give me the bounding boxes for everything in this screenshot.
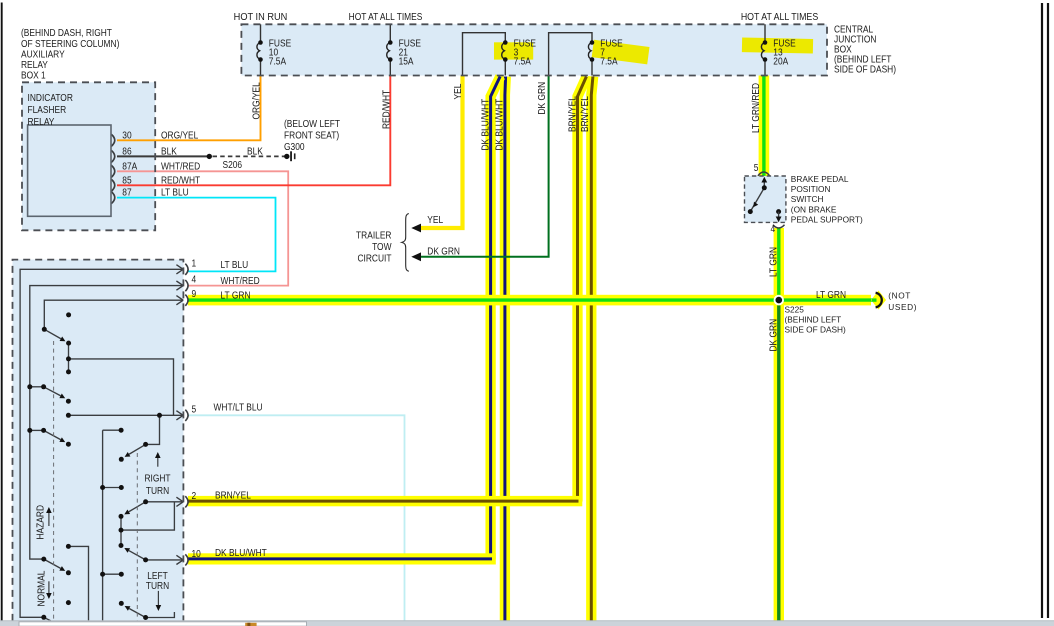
svg-text:SWITCH: SWITCH xyxy=(791,194,824,204)
svg-text:INDICATOR: INDICATOR xyxy=(28,92,74,104)
svg-text:20A: 20A xyxy=(773,56,789,68)
svg-text:(BEHIND LEFT: (BEHIND LEFT xyxy=(785,314,842,324)
svg-text:TURN: TURN xyxy=(146,580,169,592)
svg-text:HAZARD: HAZARD xyxy=(35,505,47,540)
svg-text:CIRCUIT: CIRCUIT xyxy=(357,253,391,265)
svg-text:LT GRN: LT GRN xyxy=(221,290,251,302)
svg-text:(ON BRAKE: (ON BRAKE xyxy=(791,204,837,214)
svg-text:WHT/RED: WHT/RED xyxy=(161,160,200,172)
svg-text:(BELOW LEFT: (BELOW LEFT xyxy=(284,118,340,130)
svg-text:FLASHER: FLASHER xyxy=(28,104,67,116)
svg-text:ORG/YEL: ORG/YEL xyxy=(161,129,198,141)
svg-text:PEDAL SUPPORT): PEDAL SUPPORT) xyxy=(791,215,863,225)
svg-text:LT GRN: LT GRN xyxy=(816,289,846,301)
svg-text:7.5A: 7.5A xyxy=(600,56,618,68)
svg-text:DK BLU/WHT: DK BLU/WHT xyxy=(494,99,506,151)
svg-text:30: 30 xyxy=(122,129,131,141)
svg-text:WHT/RED: WHT/RED xyxy=(221,275,260,287)
svg-text:HOT AT ALL TIMES: HOT AT ALL TIMES xyxy=(349,11,423,23)
svg-text:85: 85 xyxy=(122,174,131,186)
svg-text:4: 4 xyxy=(771,223,776,235)
svg-text:TURN: TURN xyxy=(146,485,169,497)
svg-text:10: 10 xyxy=(192,548,201,560)
svg-text:5: 5 xyxy=(754,162,759,174)
svg-text:YEL: YEL xyxy=(452,84,464,100)
svg-text:WHT/LT BLU: WHT/LT BLU xyxy=(214,401,263,413)
svg-text:FRONT SEAT): FRONT SEAT) xyxy=(284,130,339,142)
svg-text:4: 4 xyxy=(192,274,197,286)
svg-text:9: 9 xyxy=(192,288,197,300)
svg-text:DK GRN: DK GRN xyxy=(768,319,780,352)
svg-text:LT GRN/RED: LT GRN/RED xyxy=(750,83,762,133)
svg-text:G300: G300 xyxy=(284,141,305,153)
svg-text:RED/WHT: RED/WHT xyxy=(381,90,393,129)
svg-text:POSITION: POSITION xyxy=(791,184,831,194)
svg-text:RELAY: RELAY xyxy=(28,116,55,128)
svg-text:7.5A: 7.5A xyxy=(269,56,287,68)
svg-text:1: 1 xyxy=(192,257,197,269)
svg-text:TOW: TOW xyxy=(372,241,391,253)
svg-text:7.5A: 7.5A xyxy=(514,56,532,68)
svg-text:RED/WHT: RED/WHT xyxy=(161,174,200,186)
svg-text:5: 5 xyxy=(192,403,197,415)
svg-text:RIGHT: RIGHT xyxy=(144,473,170,485)
svg-text:S225: S225 xyxy=(785,305,805,315)
svg-text:BRAKE PEDAL: BRAKE PEDAL xyxy=(791,174,849,184)
svg-text:BRN/YEL: BRN/YEL xyxy=(215,490,251,502)
svg-text:15A: 15A xyxy=(399,56,415,68)
svg-text:86: 86 xyxy=(122,146,131,158)
svg-text:DK BLU/WHT: DK BLU/WHT xyxy=(479,99,491,151)
svg-text:LT GRN: LT GRN xyxy=(768,247,780,277)
svg-text:LT BLU: LT BLU xyxy=(221,259,249,271)
svg-text:HOT IN RUN: HOT IN RUN xyxy=(234,11,288,23)
svg-text:ORG/YEL: ORG/YEL xyxy=(250,82,262,119)
svg-text:2: 2 xyxy=(192,490,197,502)
svg-text:DK GRN: DK GRN xyxy=(536,82,548,115)
svg-text:SIDE OF DASH): SIDE OF DASH) xyxy=(834,64,896,76)
svg-text:LT BLU: LT BLU xyxy=(161,187,189,199)
svg-text:87A: 87A xyxy=(122,160,138,172)
svg-text:SIDE OF DASH): SIDE OF DASH) xyxy=(785,324,847,334)
svg-text:(NOT: (NOT xyxy=(888,291,911,301)
svg-text:YEL: YEL xyxy=(427,214,443,226)
svg-text:TRAILER: TRAILER xyxy=(356,230,392,242)
svg-text:BLK: BLK xyxy=(247,146,263,158)
svg-text:BLK: BLK xyxy=(161,146,177,158)
svg-text:BOX 1: BOX 1 xyxy=(21,70,46,82)
svg-text:USED): USED) xyxy=(888,302,917,312)
svg-text:BRN/YEL: BRN/YEL xyxy=(566,96,578,132)
svg-text:DK GRN: DK GRN xyxy=(427,245,460,257)
svg-text:87: 87 xyxy=(122,187,131,199)
svg-text:NORMAL: NORMAL xyxy=(36,571,48,607)
svg-text:S206: S206 xyxy=(223,159,243,171)
svg-text:HOT AT ALL TIMES: HOT AT ALL TIMES xyxy=(741,11,819,23)
svg-text:BRN/YEL: BRN/YEL xyxy=(579,96,591,132)
svg-text:DK BLU/WHT: DK BLU/WHT xyxy=(215,547,267,559)
